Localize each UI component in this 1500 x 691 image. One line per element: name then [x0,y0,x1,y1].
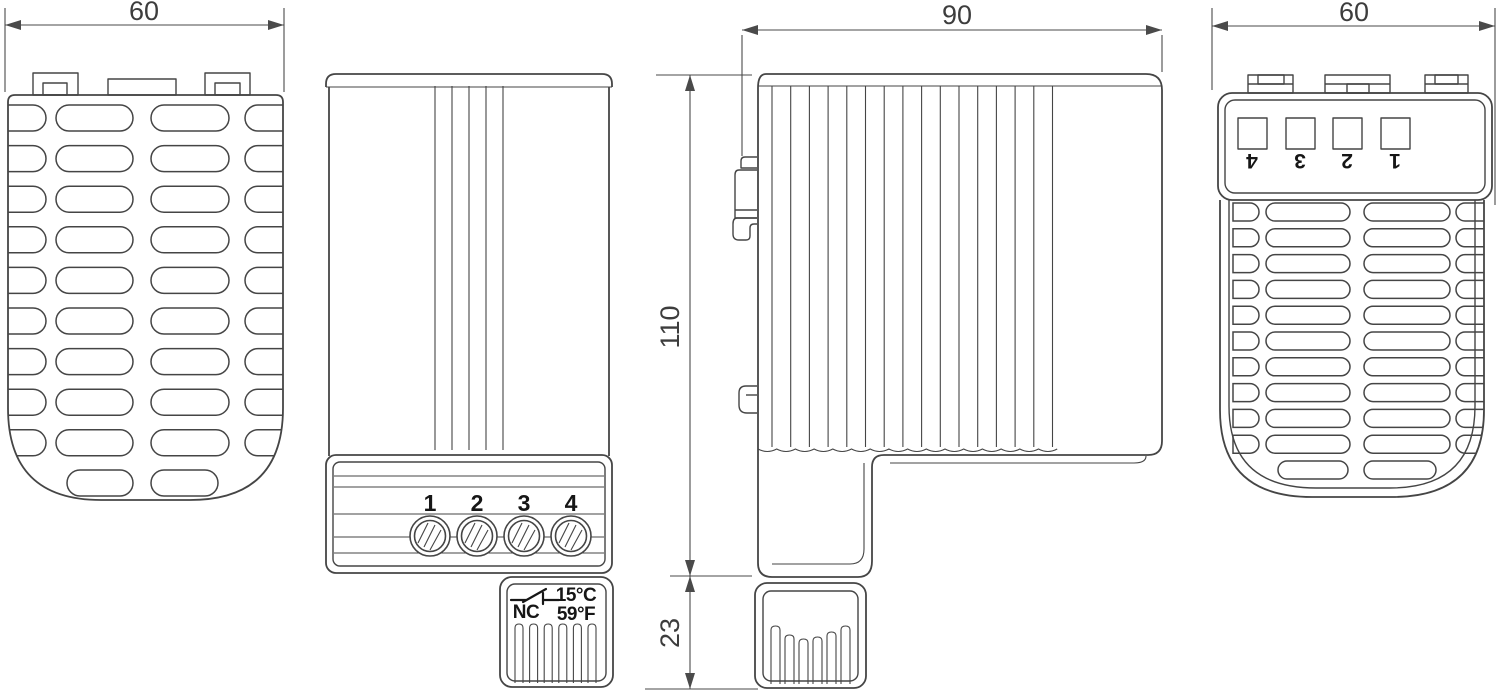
terminal-number: 4 [565,490,578,516]
terminal-number: 3 [1294,149,1306,172]
terminal-number: 1 [424,490,437,516]
technical-drawing-page: 60 1 2 3 [0,0,1500,691]
technical-drawing-canvas: 60 1 2 3 [0,0,1500,691]
drawing-background [0,0,1500,691]
terminal-number: 1 [1389,149,1401,172]
terminal-number: 4 [1246,149,1258,172]
terminal-number: 2 [1341,149,1353,172]
thermostat-contact-label: NC [513,602,540,623]
dim-height-value: 110 [655,305,685,348]
terminal-number: 2 [471,490,484,516]
dim-back-width-value: 60 [1339,0,1369,27]
terminal-number: 3 [518,490,531,516]
dim-front-width-value: 60 [129,0,159,26]
dim-depth-value: 90 [942,0,972,30]
dim-thermostat-depth-value: 23 [655,618,685,648]
thermostat-fahrenheit-label: 59°F [557,604,595,625]
thermostat-celsius-label: 15°C [556,585,597,606]
